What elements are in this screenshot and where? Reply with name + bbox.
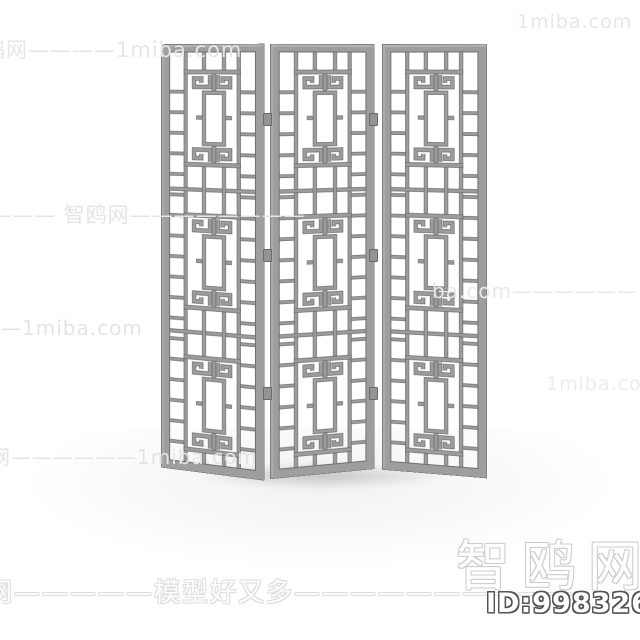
screen-panel-right [382, 44, 487, 479]
hinge [263, 113, 272, 126]
product-image: 鸥网————1miba.com 1miba.com —————— ——— 智鸥网… [0, 0, 640, 640]
hinge [263, 387, 272, 400]
watermark-left-tail: ————1miba.com [0, 316, 143, 340]
hinge [369, 387, 378, 400]
hinge [369, 113, 378, 126]
watermark-top-right: 1miba.com —————— [517, 11, 640, 33]
watermark-right-lower: 1miba.com —————— [546, 373, 640, 395]
hinge [263, 249, 272, 262]
folding-screen-render [159, 44, 487, 474]
screen-panel-middle [270, 44, 374, 479]
hinge [369, 249, 378, 262]
screen-panel-left [161, 44, 264, 481]
